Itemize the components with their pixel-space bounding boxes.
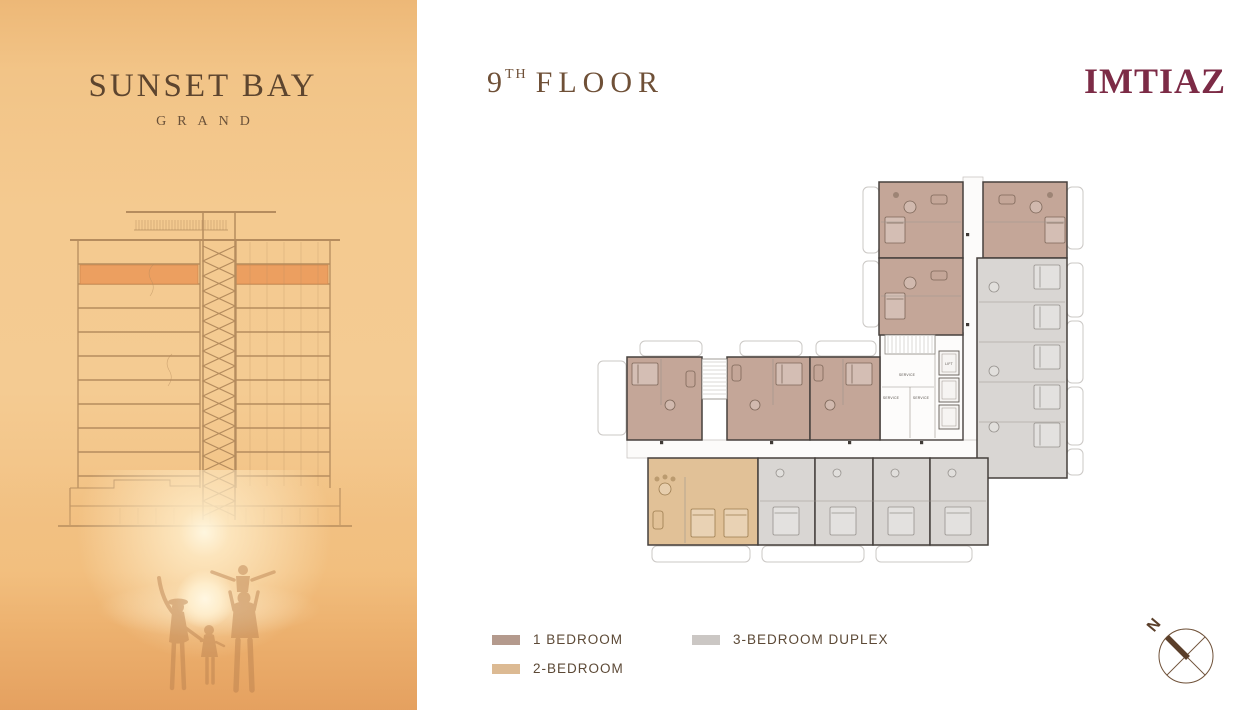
lift [939,405,959,429]
legend-swatch-1-bedroom [492,635,520,645]
legend-label-2-bedroom: 2-BEDROOM [533,661,624,676]
floor-plan-svg: SERVICESERVICESERVICELIFT [590,175,1090,571]
unit-gray [815,458,873,545]
compass-north-label: N [1144,616,1164,636]
lift [939,378,959,402]
brand-panel: SUNSET BAY GRAND [0,0,417,710]
unit-gray [930,458,988,545]
brand-subname: GRAND [38,114,368,130]
legend-swatch-2-bedroom [492,664,520,674]
compass: N [1140,597,1230,693]
balcony [598,361,626,435]
unit-brown [983,182,1067,258]
floor-plan: SERVICESERVICESERVICELIFT [590,175,1090,571]
unit-gray [977,258,1067,478]
unit-brown [879,182,963,258]
unit-brown [810,357,880,440]
legend-item-2-bedroom: 2-BEDROOM [492,661,624,676]
family-silhouette [112,548,312,710]
corridor [627,440,983,458]
page-title: 9THFLOOR [487,66,664,100]
compass-needle-icon [1167,637,1188,658]
page: { "brand": { "name": "SUNSET BAY", "subn… [0,0,1249,710]
family-silhouette-svg [112,548,312,710]
balcony [863,187,879,253]
floor-number: 9 [487,66,505,99]
floor-word: FLOOR [536,66,664,99]
balcony [1067,263,1083,317]
plan-label: SERVICE [883,396,900,400]
compass-svg: N [1140,597,1230,693]
plan-label: SERVICE [899,373,916,377]
stairs [885,335,935,354]
unit-brown [627,357,702,440]
balcony [1067,321,1083,383]
developer-logo: IMTIAZ [1084,60,1224,102]
unit-gray [758,458,815,545]
brand-name: SUNSET BAY [38,68,368,105]
legend-label-1-bedroom: 1 BEDROOM [533,632,623,647]
brand-logo: SUNSET BAY GRAND [38,68,368,130]
balcony [816,341,876,356]
balcony [1067,187,1083,249]
legend-swatch-3-bedroom-duplex [692,635,720,645]
balcony [1067,387,1083,445]
balcony [652,546,750,562]
plan-label: LIFT [945,362,953,366]
unit-gray [873,458,930,545]
balcony [863,261,879,327]
balcony [740,341,802,356]
balcony [1067,449,1083,475]
balcony [762,546,864,562]
unit-brown [727,357,810,440]
legend-item-3-bedroom-duplex: 3-BEDROOM DUPLEX [692,632,889,647]
balcony [640,341,702,356]
floor-suffix: TH [505,67,528,82]
plan-label: SERVICE [913,396,930,400]
balcony [876,546,972,562]
legend-item-1-bedroom: 1 BEDROOM [492,632,623,647]
stairs [702,359,727,399]
legend-label-3-bedroom-duplex: 3-BEDROOM DUPLEX [733,632,889,647]
unit-tan [648,458,758,545]
unit-brown [879,258,963,335]
